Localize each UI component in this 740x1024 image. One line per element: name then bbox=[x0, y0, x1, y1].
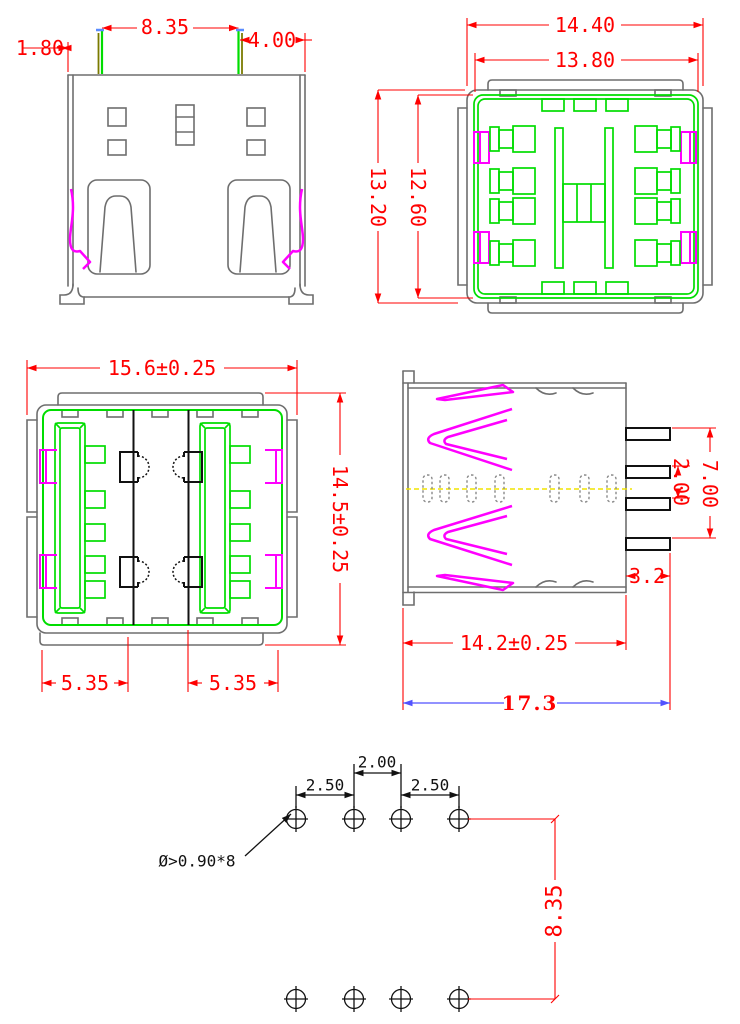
hole bbox=[447, 986, 471, 1012]
side-springs bbox=[428, 385, 513, 590]
dim-top-outer-width: 14.40 bbox=[555, 13, 615, 37]
hole bbox=[284, 806, 308, 832]
dim-face-port-left: 5.35 bbox=[61, 671, 109, 695]
dim-holes-row-spacing: 8.35 bbox=[543, 885, 568, 938]
dim-top-outer-height: 13.20 bbox=[366, 167, 390, 227]
hole-dimensions: 2.50 2.00 2.50 Ø>0.90*8 8.35 bbox=[158, 753, 567, 1004]
top-view: 14.40 13.80 13.20 12.60 bbox=[366, 13, 712, 313]
hole bbox=[389, 806, 413, 832]
front-spring-cutouts bbox=[88, 180, 290, 274]
dim-front-left: 1.80 bbox=[16, 36, 64, 60]
dim-face-port-right: 5.35 bbox=[209, 671, 257, 695]
hole bbox=[447, 806, 471, 832]
hole bbox=[389, 986, 413, 1012]
dim-side-pin-span: 7.00 bbox=[698, 460, 722, 508]
dim-face-width: 15.6±0.25 bbox=[108, 356, 216, 380]
hole bbox=[342, 806, 366, 832]
side-contact-row bbox=[406, 475, 632, 502]
top-body-outline bbox=[467, 80, 703, 313]
hole-layout-view: 2.50 2.00 2.50 Ø>0.90*8 8.35 bbox=[158, 753, 567, 1013]
drawing-canvas: 1.80 8.35 4.00 bbox=[0, 0, 740, 1024]
side-dimensions: 7.00 2.00 3.2 14.2±0.25 17.3 bbox=[403, 428, 722, 715]
pcb-holes bbox=[284, 806, 471, 1012]
dim-side-body-depth: 14.2±0.25 bbox=[460, 631, 568, 655]
front-window-cutouts bbox=[108, 105, 265, 155]
dim-side-pin-pitch: 2.00 bbox=[669, 458, 693, 506]
front-view: 1.80 8.35 4.00 bbox=[16, 15, 313, 304]
dim-side-overall: 17.3 bbox=[502, 691, 559, 715]
side-pins bbox=[626, 428, 670, 550]
dim-holes-pitch-left: 2.50 bbox=[306, 776, 345, 795]
face-side-clips bbox=[40, 450, 282, 588]
dim-holes-pitch-center: 2.00 bbox=[358, 753, 397, 772]
top-insulator bbox=[474, 95, 698, 298]
hole bbox=[284, 986, 308, 1012]
dim-top-inner-height: 12.60 bbox=[406, 167, 430, 227]
dim-side-pin-stub: 3.2 bbox=[629, 564, 665, 588]
side-view: 7.00 2.00 3.2 14.2±0.25 17.3 bbox=[403, 371, 722, 715]
face-dividers-latches bbox=[120, 410, 202, 625]
dim-front-span: 8.35 bbox=[141, 15, 189, 39]
dim-holes-pitch-right: 2.50 bbox=[411, 776, 450, 795]
holes-diameter-note: Ø>0.90*8 bbox=[158, 852, 235, 871]
front-dimensions: 1.80 8.35 4.00 bbox=[16, 15, 312, 72]
face-view: 15.6±0.25 14.5±0.25 5.35 5.35 bbox=[27, 356, 352, 695]
dim-top-inner-width: 13.80 bbox=[555, 48, 615, 72]
hole bbox=[342, 986, 366, 1012]
side-body-outline bbox=[403, 371, 626, 605]
face-insulator bbox=[43, 410, 282, 625]
engineering-drawing-usb-connector: 1.80 8.35 4.00 bbox=[0, 0, 740, 1024]
dim-face-height: 14.5±0.25 bbox=[328, 465, 352, 573]
dim-front-right: 4.00 bbox=[248, 28, 296, 52]
